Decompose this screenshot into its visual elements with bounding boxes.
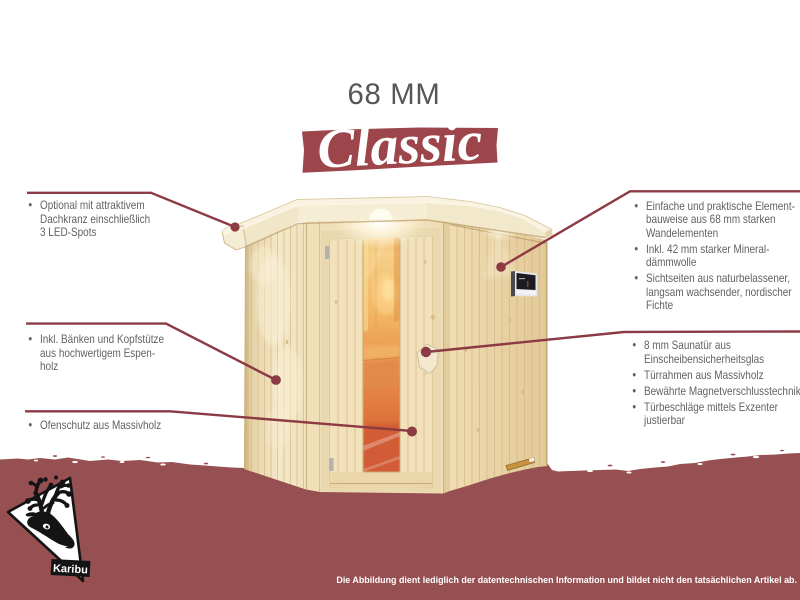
svg-text:Karibu: Karibu (53, 563, 88, 577)
svg-text:68 MM: 68 MM (347, 78, 440, 111)
svg-text:Classic: Classic (316, 110, 484, 181)
